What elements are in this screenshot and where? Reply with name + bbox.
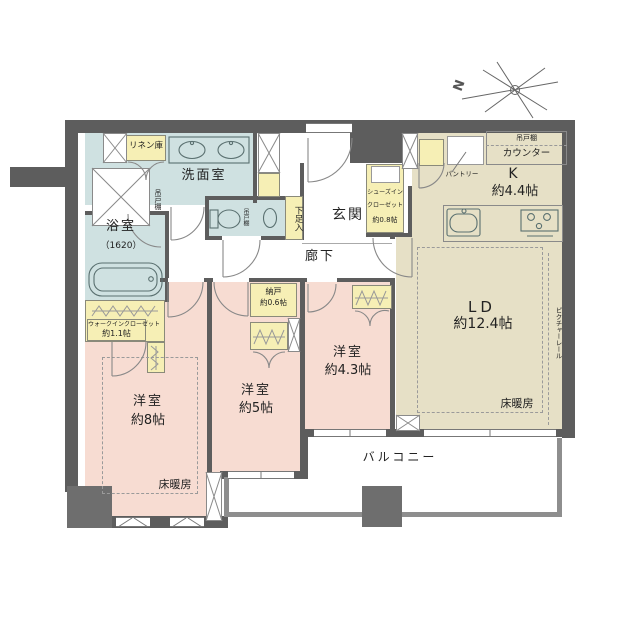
bedroom43-size: 約4.3帖	[306, 363, 390, 379]
storage-closet-bifold	[253, 352, 285, 368]
bathtub-drain	[149, 277, 154, 282]
bedroom8-heating-label: 床暖房	[148, 478, 202, 491]
linen-label: リネン庫	[126, 141, 166, 151]
linen-door-arcs	[128, 162, 164, 180]
storage-size: 約0.6帖	[250, 298, 297, 307]
vanity	[169, 137, 249, 163]
shoe-cabinet-label: 下足入	[287, 199, 302, 239]
floor-plan: リネン庫 洗面室 吊戸棚 浴室 （1620） ウォークインクローゼット 約1.1…	[0, 0, 640, 640]
vanity-tap-2	[229, 141, 232, 144]
balcony-label: バルコニー	[350, 450, 450, 464]
wic-hanger	[92, 306, 158, 316]
kitchen-label: K	[483, 166, 543, 183]
wic-extension-hanger	[151, 346, 158, 370]
window-marks	[118, 152, 490, 527]
bedroom8-window2-casement	[172, 518, 202, 527]
bathtub-inner	[94, 268, 157, 291]
kitchen-door-arc	[419, 163, 444, 188]
washroom-door-arc	[171, 207, 204, 240]
bath-label: 浴室	[95, 219, 147, 235]
pantry-label: パントリー	[444, 171, 480, 179]
bedroom8-window1-casement	[118, 518, 148, 527]
stove-burner-3	[536, 223, 541, 228]
plan-linework	[0, 0, 640, 640]
bedroom8-size: 約8帖	[98, 413, 198, 429]
ld-label: LD	[450, 298, 514, 316]
bedroom43-closet-hanger	[355, 291, 388, 305]
stove	[521, 210, 558, 231]
toilet-door-arc	[223, 240, 260, 277]
shoes-in-closet-line1: シューズイン	[366, 189, 404, 196]
ld-size: 約12.4帖	[437, 316, 529, 333]
wic-size: 約1.1帖	[88, 329, 145, 339]
front-door-arc	[308, 138, 352, 182]
storage-closet-hanger	[253, 330, 285, 344]
bedroom5-door-arc	[214, 282, 248, 316]
kitchen-counter-label: カウンター	[486, 148, 567, 159]
washroom-shelf-label: 吊戸棚	[150, 180, 161, 218]
compass-icon	[462, 62, 558, 118]
kitchen-sink-basin	[450, 214, 477, 232]
vanity-tap-1	[190, 141, 193, 144]
kitchen-tap	[462, 209, 466, 213]
bedroom5-size: 約5帖	[214, 401, 298, 417]
ld-heating-label: 床暖房	[490, 397, 544, 410]
stove-burner-1	[528, 214, 535, 221]
bedroom8-label: 洋室	[98, 394, 198, 410]
toilet-shelf-label: 吊戸棚	[238, 202, 248, 232]
bedroom43-label: 洋室	[306, 345, 390, 361]
picture-rail-label: ピクチャーレール	[551, 300, 561, 366]
hallway-label: 廊下	[294, 249, 346, 265]
storage-label: 納戸	[250, 287, 297, 297]
pantry-leader-line	[452, 152, 466, 172]
bath-size: （1620）	[95, 241, 147, 252]
kitchen-size: 約4.4帖	[477, 184, 553, 200]
ld-door-arc	[373, 238, 412, 277]
door-arcs	[112, 138, 444, 376]
shoes-in-closet-size: 約0.8帖	[366, 216, 404, 224]
shoes-in-closet-line2: クローゼット	[366, 202, 404, 209]
bedroom43-closet-bifold	[355, 310, 389, 326]
toilet-sink	[264, 209, 277, 228]
stove-burner-2	[544, 214, 551, 221]
washroom-label: 洗面室	[168, 168, 240, 184]
wic-door-arc	[112, 342, 146, 376]
bedroom43-door-arc	[308, 284, 336, 312]
bedroom8-door-arc	[168, 282, 203, 317]
toilet-bowl	[218, 210, 240, 228]
bedroom5-label: 洋室	[214, 383, 298, 399]
wic-label: ウォークインクローゼット	[88, 321, 145, 328]
toilet-tank	[210, 210, 218, 228]
kitchen-shelf-label: 吊戸棚	[486, 134, 567, 142]
